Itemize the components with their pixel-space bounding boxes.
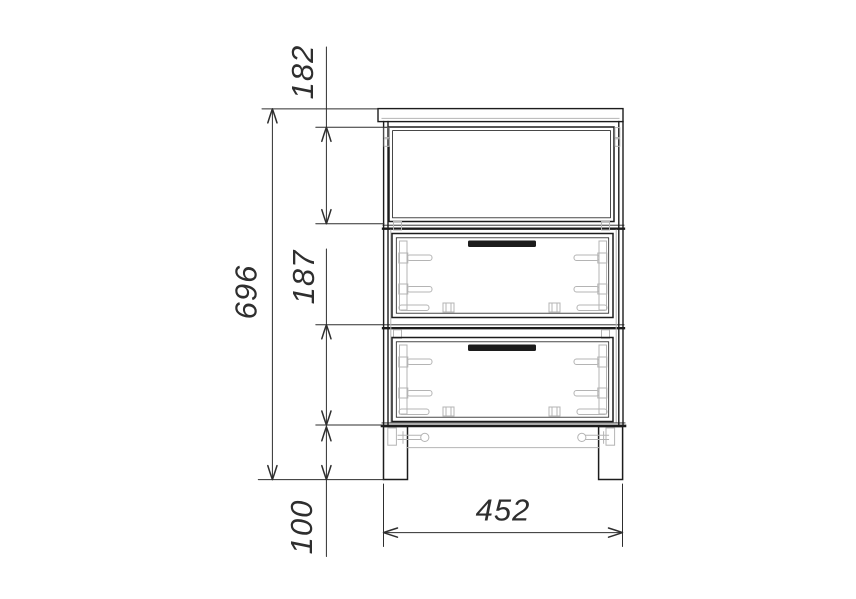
drawer-2 (392, 338, 613, 422)
dimension-label-plinth-height: 100 (284, 500, 319, 555)
leg-right (599, 427, 623, 480)
open-niche (384, 127, 620, 222)
dimension-label-top-niche-height: 182 (285, 45, 320, 100)
side-panels (384, 122, 623, 426)
dimension-label-overall-width: 452 (476, 493, 531, 528)
niche-back-panel (393, 131, 611, 218)
leg-screw-right (578, 428, 615, 445)
dimension-label-drawer-section-height: 187 (286, 249, 321, 304)
cabinet-front-view (378, 109, 625, 480)
dimension-top-niche-height: 182 (285, 45, 389, 224)
screw-head (421, 433, 429, 441)
niche-opening (389, 127, 614, 222)
dimension-label-overall-height: 696 (229, 265, 264, 320)
drawing-sheet: 696 182 187 100 452 (0, 0, 856, 599)
technical-drawing-canvas: 696 182 187 100 452 (0, 0, 856, 599)
base-legs (384, 427, 623, 480)
leg-bracket (606, 428, 615, 445)
screw-shaft (586, 432, 609, 443)
back-panel-side-lines (391, 230, 616, 422)
leg-screw-left (388, 428, 429, 445)
dimension-drawer-section-height: 187 (286, 249, 383, 425)
dimension-overall-width: 452 (384, 484, 623, 547)
leg-bracket (388, 428, 397, 445)
screw-head (578, 433, 586, 441)
screw-shaft (398, 432, 421, 443)
leg-left (384, 427, 408, 480)
drawer-1 (392, 234, 613, 318)
divider-corner-fittings (394, 222, 610, 339)
extension-lines (258, 109, 384, 480)
top-panel (378, 109, 623, 122)
dimension-plinth-height: 100 (284, 425, 331, 557)
extension-lines (316, 325, 383, 425)
